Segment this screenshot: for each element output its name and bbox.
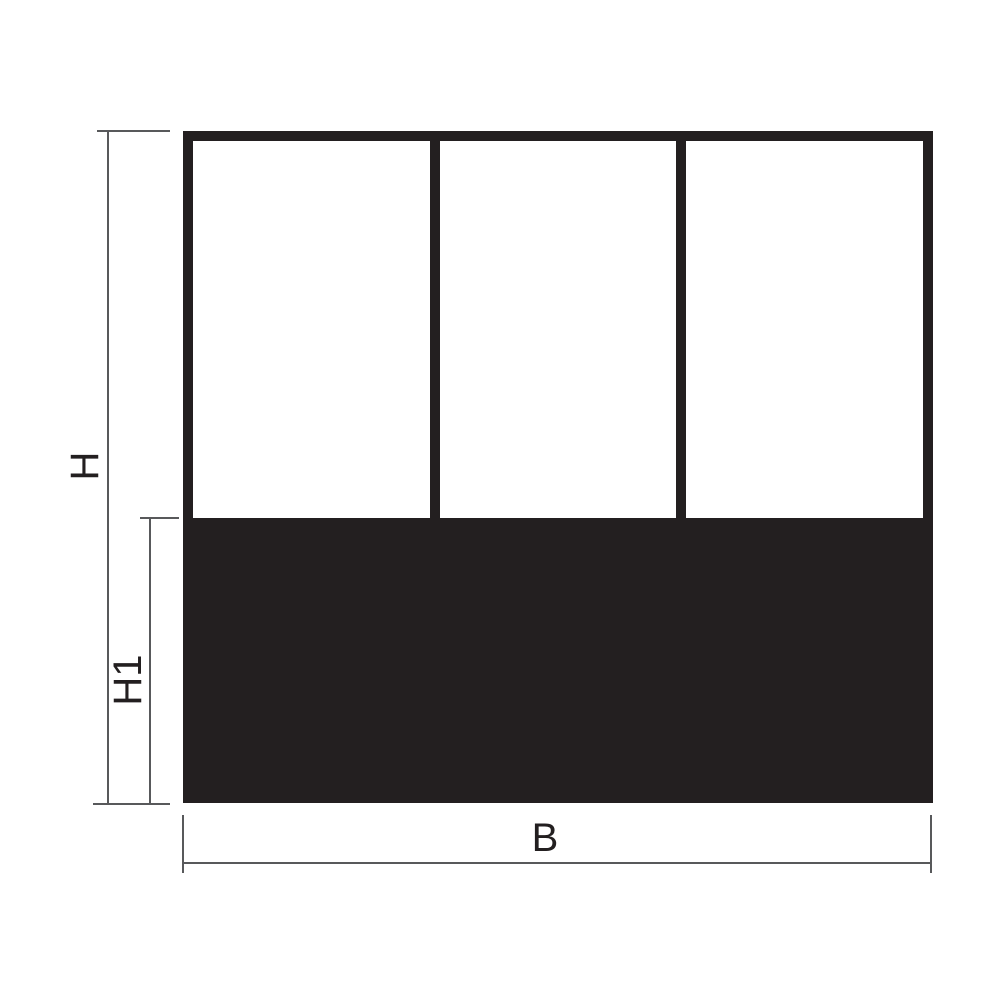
- h1-dimension-label: H1: [88, 640, 168, 720]
- diagram-canvas: H H1 B: [0, 0, 1000, 1000]
- b-dimension-label: B: [505, 818, 585, 858]
- b-dimension-tick-right: [930, 815, 932, 873]
- frame-upper-section: [183, 131, 933, 518]
- b-dimension-tick-left: [182, 815, 184, 873]
- h-dimension-tick-top: [97, 130, 170, 132]
- glass-panel-right: [686, 141, 923, 518]
- glass-panel-left: [193, 141, 430, 518]
- base-panel: [183, 518, 933, 803]
- h-dimension-label: H: [55, 436, 115, 496]
- glass-panel-middle: [440, 141, 677, 518]
- b-dimension-line: [183, 862, 932, 864]
- h1-dimension-tick-top: [140, 517, 179, 519]
- h-h1-dimension-tick-bottom: [93, 803, 170, 805]
